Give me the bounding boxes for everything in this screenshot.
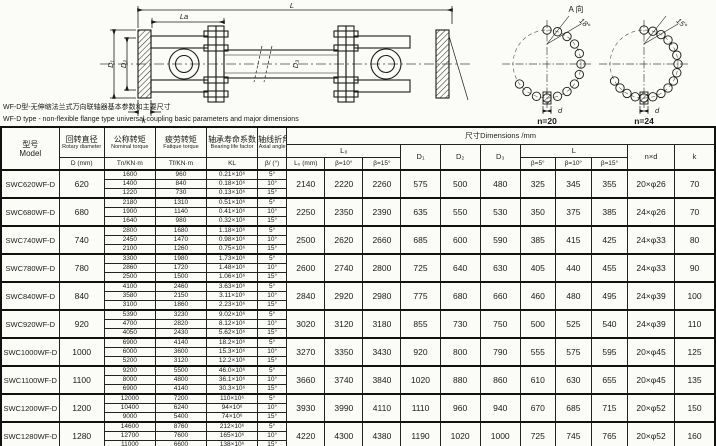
cell-nominal-torque: 3100: [104, 301, 155, 311]
cell-l0: 2140: [287, 170, 325, 198]
cell-d2: 600: [440, 226, 480, 254]
cell-nxd: 24×φ39: [627, 310, 674, 338]
col-header-d2: D₂: [440, 144, 480, 170]
cell-bearing-life: 46.0×10⁶: [207, 366, 258, 376]
cell-l0-b10: 2350: [325, 198, 363, 226]
cell-bearing-life: 212×10⁶: [207, 422, 258, 432]
cell-bearing-life: 15.3×10⁶: [207, 348, 258, 357]
cell-nominal-torque: 4700: [104, 320, 155, 329]
label-d1: D₁: [106, 59, 115, 67]
cell-fatigue-torque: 5500: [155, 366, 206, 376]
cell-nxd: 24×φ39: [627, 282, 674, 310]
sub-header-l0-b15: β=15°: [363, 157, 401, 170]
cell-d2: 1020: [440, 422, 480, 446]
cell-axial-angle: 5°: [258, 366, 287, 376]
cell-model: SWC740WF-D: [1, 226, 59, 254]
cell-fatigue-torque: 3230: [155, 310, 206, 320]
cell-model: SWC1200WF-D: [1, 394, 59, 422]
cell-d2: 550: [440, 198, 480, 226]
cell-fatigue-torque: 730: [155, 189, 206, 199]
cell-d1: 1020: [401, 366, 440, 394]
cell-nominal-torque: 12700: [104, 432, 155, 441]
cell-l0: 2500: [287, 226, 325, 254]
cell-l0-b15: 2260: [363, 170, 401, 198]
cell-fatigue-torque: 7600: [155, 432, 206, 441]
cell-l0-b10: 4300: [325, 422, 363, 446]
table-row: SWC620WF-D62016009600.21×10⁶5°2140222022…: [1, 170, 715, 180]
cell-l0: 3270: [287, 338, 325, 366]
cell-k: 70: [675, 170, 715, 198]
cell-axial-angle: 10°: [258, 404, 287, 413]
cell-l-b10: 525: [555, 310, 591, 338]
cell-nominal-torque: 2100: [104, 245, 155, 255]
cell-l-b10: 375: [555, 198, 591, 226]
col-header-rotary-diameter: 回转直径 Rotary diameter: [59, 127, 104, 157]
cell-l0-b15: 2800: [363, 254, 401, 282]
cell-d3: 630: [480, 254, 520, 282]
cell-l0: 4220: [287, 422, 325, 446]
cell-fatigue-torque: 3120: [155, 357, 206, 367]
cell-fatigue-torque: 7200: [155, 394, 206, 404]
cell-axial-angle: 5°: [258, 422, 287, 432]
cell-l-b10: 745: [555, 422, 591, 446]
cell-l-b15: 385: [591, 198, 627, 226]
bolt-hole: [563, 32, 571, 40]
table-row: SWC1280WF-D1280146008760212×10⁶5°4220430…: [1, 422, 715, 432]
table-body: SWC620WF-D62016009600.21×10⁶5°2140222022…: [1, 170, 715, 446]
cell-fatigue-torque: 8760: [155, 422, 206, 432]
cell-d1: 635: [401, 198, 440, 226]
caption-cn: WF-D型-无伸缩法兰式万向联轴器基本参数和主要尺寸: [3, 102, 171, 111]
cell-nominal-torque: 2450: [104, 236, 155, 245]
col-header-axial-angle: 轴线折角 Axial angle: [258, 127, 287, 157]
cell-fatigue-torque: 1260: [155, 245, 206, 255]
cell-nominal-torque: 8000: [104, 376, 155, 385]
cell-nominal-torque: 6900: [104, 338, 155, 348]
cell-k: 100: [675, 282, 715, 310]
cell-d1: 725: [401, 254, 440, 282]
cell-l-b15: 355: [591, 170, 627, 198]
cell-axial-angle: 10°: [258, 180, 287, 189]
cell-l-b15: 425: [591, 226, 627, 254]
cell-rotary-diameter: 1100: [59, 366, 104, 394]
cell-d3: 750: [480, 310, 520, 338]
cell-d3: 860: [480, 366, 520, 394]
cell-axial-angle: 10°: [258, 236, 287, 245]
unit-rotary-diameter: D (mm): [59, 157, 104, 170]
cell-fatigue-torque: 6600: [155, 441, 206, 446]
cell-l-b15: 455: [591, 254, 627, 282]
cell-nominal-torque: 2800: [104, 226, 155, 236]
cell-l0-b15: 3180: [363, 310, 401, 338]
articulation-line: [449, 36, 468, 100]
cell-l-b5: 670: [520, 394, 555, 422]
bolt-hole: [664, 84, 672, 92]
bolt-hole: [610, 77, 618, 85]
cell-l0: 3660: [287, 366, 325, 394]
cell-nominal-torque: 2500: [104, 273, 155, 283]
cell-d2: 960: [440, 394, 480, 422]
cell-k: 70: [675, 198, 715, 226]
cell-fatigue-torque: 980: [155, 217, 206, 227]
cell-bearing-life: 0.21×10⁶: [207, 170, 258, 180]
label-n24: n=24: [634, 116, 654, 126]
cell-bearing-life: 1.18×10⁶: [207, 226, 258, 236]
cell-rotary-diameter: 780: [59, 254, 104, 282]
cell-l-b10: 415: [555, 226, 591, 254]
cell-rotary-diameter: 1000: [59, 338, 104, 366]
cell-nominal-torque: 1400: [104, 180, 155, 189]
cell-d2: 500: [440, 170, 480, 198]
label-angle-n24: 15°: [674, 16, 688, 30]
cell-axial-angle: 15°: [258, 357, 287, 367]
cell-bearing-life: 138×10⁶: [207, 441, 258, 446]
cell-model: SWC920WF-D: [1, 310, 59, 338]
col-header-nominal-torque: 公称转矩 Nominal torque: [104, 127, 155, 157]
unit-fatigue-torque: Tf/KN·m: [155, 157, 206, 170]
cell-nominal-torque: 2860: [104, 264, 155, 273]
col-group-l: L: [520, 144, 627, 157]
cell-nxd: 20×φ52: [627, 394, 674, 422]
cell-d2: 800: [440, 338, 480, 366]
cell-l0: 2600: [287, 254, 325, 282]
cell-l-b5: 555: [520, 338, 555, 366]
cell-l-b5: 325: [520, 170, 555, 198]
cell-axial-angle: 5°: [258, 254, 287, 264]
cell-l-b5: 460: [520, 282, 555, 310]
cell-d3: 1000: [480, 422, 520, 446]
cell-l0-b15: 2660: [363, 226, 401, 254]
col-group-l0: L₀: [287, 144, 401, 157]
cell-bearing-life: 0.41×10⁶: [207, 208, 258, 217]
cell-bearing-life: 0.75×10⁶: [207, 245, 258, 255]
cell-nxd: 24×φ33: [627, 226, 674, 254]
cell-l0-b15: 3840: [363, 366, 401, 394]
cell-axial-angle: 5°: [258, 282, 287, 292]
cell-bearing-life: 165×10⁶: [207, 432, 258, 441]
bolt-hole: [664, 36, 672, 44]
cell-bearing-life: 0.51×10⁶: [207, 198, 258, 208]
label-d2: D₂: [119, 60, 128, 68]
cell-nominal-torque: 4050: [104, 329, 155, 339]
cell-l0-b15: 3430: [363, 338, 401, 366]
cell-model: SWC620WF-D: [1, 170, 59, 198]
cell-model: SWC1280WF-D: [1, 422, 59, 446]
cell-fatigue-torque: 6240: [155, 404, 206, 413]
cell-axial-angle: 10°: [258, 292, 287, 301]
cell-l0-b15: 2390: [363, 198, 401, 226]
cell-nominal-torque: 11000: [104, 441, 155, 446]
cell-axial-angle: 10°: [258, 264, 287, 273]
cell-fatigue-torque: 2430: [155, 329, 206, 339]
cell-l-b5: 500: [520, 310, 555, 338]
cell-nominal-torque: 5390: [104, 310, 155, 320]
cell-nominal-torque: 4100: [104, 282, 155, 292]
cell-nxd: 20×φ45: [627, 366, 674, 394]
cell-fatigue-torque: 1680: [155, 226, 206, 236]
bolt-hole: [575, 49, 583, 57]
cell-l0: 2840: [287, 282, 325, 310]
sub-header-l-b5: β=5°: [520, 157, 555, 170]
cell-model: SWC1000WF-D: [1, 338, 59, 366]
col-header-fatigue-torque: 疲劳转矩 Fatique torque: [155, 127, 206, 157]
cell-bearing-life: 74×10⁶: [207, 413, 258, 423]
cell-k: 135: [675, 366, 715, 394]
cell-bearing-life: 3.63×10⁶: [207, 282, 258, 292]
cell-model: SWC840WF-D: [1, 282, 59, 310]
cell-k: 80: [675, 226, 715, 254]
cell-nominal-torque: 2180: [104, 198, 155, 208]
cell-axial-angle: 10°: [258, 208, 287, 217]
cell-d1: 1190: [401, 422, 440, 446]
cell-nominal-torque: 9000: [104, 413, 155, 423]
caption-en: WF-D type - non-flexible flange type uni…: [3, 116, 299, 123]
cell-d3: 480: [480, 170, 520, 198]
cell-l0-b10: 2220: [325, 170, 363, 198]
cell-d1: 855: [401, 310, 440, 338]
cell-bearing-life: 94×10⁶: [207, 404, 258, 413]
spec-sheet: L La: [0, 0, 716, 446]
table-row: SWC680WF-D680218013100.51×10⁶5°225023502…: [1, 198, 715, 208]
cell-l-b15: 540: [591, 310, 627, 338]
label-angle-n20: 18°: [577, 16, 591, 30]
cell-fatigue-torque: 1310: [155, 198, 206, 208]
cell-d1: 685: [401, 226, 440, 254]
col-header-model: 型号 Model: [1, 127, 59, 170]
cell-nxd: 20×φ26: [627, 170, 674, 198]
cell-d2: 880: [440, 366, 480, 394]
cell-l-b5: 725: [520, 422, 555, 446]
cell-axial-angle: 10°: [258, 348, 287, 357]
cell-axial-angle: 15°: [258, 413, 287, 423]
cell-nominal-torque: 6000: [104, 348, 155, 357]
cell-d3: 790: [480, 338, 520, 366]
coupling-drawing-svg: L La: [0, 0, 716, 126]
cell-d1: 1110: [401, 394, 440, 422]
sub-header-l0-b10: β=10°: [325, 157, 363, 170]
label-hole-dia-n20: d: [558, 106, 563, 115]
cell-l-b10: 345: [555, 170, 591, 198]
cell-bearing-life: 8.12×10⁶: [207, 320, 258, 329]
cell-nominal-torque: 3300: [104, 254, 155, 264]
unit-axial-angle: β/ (°): [258, 157, 287, 170]
cell-nominal-torque: 1900: [104, 208, 155, 217]
flange-view-n20: 18° d n=20: [502, 16, 592, 126]
cell-l0: 2250: [287, 198, 325, 226]
label-hole-dia-n24: d: [655, 106, 660, 115]
cell-nominal-torque: 1640: [104, 217, 155, 227]
cell-rotary-diameter: 840: [59, 282, 104, 310]
cell-axial-angle: 5°: [258, 226, 287, 236]
cell-nominal-torque: 3580: [104, 292, 155, 301]
cell-fatigue-torque: 1470: [155, 236, 206, 245]
cell-bearing-life: 1.73×10⁶: [207, 254, 258, 264]
col-header-nxd: n×d: [627, 144, 674, 170]
cell-axial-angle: 15°: [258, 245, 287, 255]
cell-nxd: 24×φ33: [627, 254, 674, 282]
cell-d1: 775: [401, 282, 440, 310]
cell-l-b5: 385: [520, 226, 555, 254]
unit-bearing-life: KL: [207, 157, 258, 170]
parameters-table: 型号 Model 回转直径 Rotary diameter 公称转矩 Nomin…: [0, 126, 716, 446]
cell-axial-angle: 10°: [258, 376, 287, 385]
cell-bearing-life: 0.32×10⁶: [207, 217, 258, 227]
cell-d2: 640: [440, 254, 480, 282]
cell-bearing-life: 0.98×10⁶: [207, 236, 258, 245]
cell-d1: 920: [401, 338, 440, 366]
cell-bearing-life: 12.2×10⁶: [207, 357, 258, 367]
label-d3: D₃: [291, 60, 300, 68]
label-overall-length: L: [290, 1, 294, 10]
cell-l-b15: 495: [591, 282, 627, 310]
cell-k: 90: [675, 254, 715, 282]
flange-view-n24: 15° d n=24: [599, 16, 689, 126]
cell-fatigue-torque: 1720: [155, 264, 206, 273]
bolt-hole: [631, 93, 639, 101]
cell-axial-angle: 5°: [258, 198, 287, 208]
cell-rotary-diameter: 920: [59, 310, 104, 338]
cell-nominal-torque: 6900: [104, 385, 155, 395]
cell-axial-angle: 15°: [258, 189, 287, 199]
cell-axial-angle: 15°: [258, 301, 287, 311]
cell-l0-b15: 4380: [363, 422, 401, 446]
cell-rotary-diameter: 620: [59, 170, 104, 198]
cell-axial-angle: 15°: [258, 329, 287, 339]
sub-header-l0: L₀ (mm): [287, 157, 325, 170]
cell-l-b10: 685: [555, 394, 591, 422]
cell-model: SWC680WF-D: [1, 198, 59, 226]
cell-l0-b15: 2980: [363, 282, 401, 310]
cell-l-b10: 480: [555, 282, 591, 310]
cell-nominal-torque: 10400: [104, 404, 155, 413]
cell-nominal-torque: 14600: [104, 422, 155, 432]
cell-l-b15: 655: [591, 366, 627, 394]
col-header-d1: D₁: [401, 144, 440, 170]
cell-d3: 590: [480, 226, 520, 254]
cell-nxd: 20×φ52: [627, 422, 674, 446]
cell-fatigue-torque: 3600: [155, 348, 206, 357]
table-row: SWC1100WF-D11009200550046.0×10⁶5°3660374…: [1, 366, 715, 376]
col-header-bearing-life: 轴承寿命系数 Bearing life factor: [207, 127, 258, 157]
cell-bearing-life: 30.3×10⁶: [207, 385, 258, 395]
cell-d2: 730: [440, 310, 480, 338]
coupling-drawing: L La: [0, 0, 716, 126]
cell-bearing-life: 1.06×10⁶: [207, 273, 258, 283]
cell-nxd: 24×φ26: [627, 198, 674, 226]
cell-d3: 660: [480, 282, 520, 310]
cell-bearing-life: 36.1×10⁶: [207, 376, 258, 385]
cell-rotary-diameter: 1280: [59, 422, 104, 446]
cell-fatigue-torque: 4800: [155, 376, 206, 385]
col-header-k: k: [675, 144, 715, 170]
table-row: SWC780WF-D780330019801.73×10⁶5°260027402…: [1, 254, 715, 264]
cell-l0-b15: 4110: [363, 394, 401, 422]
cell-axial-angle: 15°: [258, 385, 287, 395]
cell-l0-b10: 3740: [325, 366, 363, 394]
cell-l-b10: 575: [555, 338, 591, 366]
bolt-hole: [669, 43, 677, 51]
cell-fatigue-torque: 1860: [155, 301, 206, 311]
cell-k: 150: [675, 394, 715, 422]
cell-l0-b10: 3120: [325, 310, 363, 338]
cell-l-b15: 715: [591, 394, 627, 422]
left-end-flange: [138, 30, 151, 98]
cell-d1: 575: [401, 170, 440, 198]
cell-nominal-torque: 5200: [104, 357, 155, 367]
dims-title: 尺寸Dimensions /mm: [287, 127, 715, 144]
label-n20: n=20: [537, 116, 557, 126]
cell-l0-b10: 2620: [325, 226, 363, 254]
cell-fatigue-torque: 2820: [155, 320, 206, 329]
cell-axial-angle: 15°: [258, 441, 287, 446]
cell-fatigue-torque: 2150: [155, 292, 206, 301]
sub-header-l-b10: β=10°: [555, 157, 591, 170]
cell-l0: 3020: [287, 310, 325, 338]
cell-fatigue-torque: 840: [155, 180, 206, 189]
cell-l-b5: 610: [520, 366, 555, 394]
cell-model: SWC1100WF-D: [1, 366, 59, 394]
cell-rotary-diameter: 1200: [59, 394, 104, 422]
cell-l-b10: 630: [555, 366, 591, 394]
cell-bearing-life: 2.23×10⁶: [207, 301, 258, 311]
cell-l-b10: 440: [555, 254, 591, 282]
cell-fatigue-torque: 4140: [155, 338, 206, 348]
table-row: SWC740WF-D740280016801.18×10⁶5°250026202…: [1, 226, 715, 236]
cell-nxd: 20×φ45: [627, 338, 674, 366]
cell-d3: 940: [480, 394, 520, 422]
cell-nominal-torque: 12000: [104, 394, 155, 404]
cell-l-b15: 595: [591, 338, 627, 366]
cell-l-b5: 350: [520, 198, 555, 226]
cell-bearing-life: 18.2×10⁶: [207, 338, 258, 348]
cell-axial-angle: 15°: [258, 217, 287, 227]
label-la: La: [180, 12, 188, 21]
cell-k: 160: [675, 422, 715, 446]
cell-l0-b10: 3350: [325, 338, 363, 366]
table-row: SWC1200WF-D1200120007200110×10⁶5°3930399…: [1, 394, 715, 404]
cell-fatigue-torque: 4140: [155, 385, 206, 395]
col-header-d3: D₃: [480, 144, 520, 170]
cell-l0-b10: 2740: [325, 254, 363, 282]
cell-axial-angle: 15°: [258, 273, 287, 283]
cell-fatigue-torque: 5400: [155, 413, 206, 423]
cell-axial-angle: 5°: [258, 394, 287, 404]
cell-bearing-life: 110×10⁶: [207, 394, 258, 404]
cell-nominal-torque: 1220: [104, 189, 155, 199]
cell-rotary-diameter: 680: [59, 198, 104, 226]
cell-axial-angle: 5°: [258, 338, 287, 348]
cell-l0-b10: 3990: [325, 394, 363, 422]
unit-nominal-torque: Tn/KN·m: [104, 157, 155, 170]
sub-header-l-b15: β=15°: [591, 157, 627, 170]
cell-k: 125: [675, 338, 715, 366]
cell-nominal-torque: 1600: [104, 170, 155, 180]
table-row: SWC920WF-D920539032309.02×10⁶5°302031203…: [1, 310, 715, 320]
cell-bearing-life: 9.02×10⁶: [207, 310, 258, 320]
cell-fatigue-torque: 1140: [155, 208, 206, 217]
cell-bearing-life: 0.13×10⁶: [207, 189, 258, 199]
cell-d2: 680: [440, 282, 480, 310]
cell-bearing-life: 5.62×10⁶: [207, 329, 258, 339]
right-end-flange: [436, 30, 449, 98]
cell-axial-angle: 10°: [258, 320, 287, 329]
cell-fatigue-torque: 1500: [155, 273, 206, 283]
table-row: SWC1000WF-D10006900414018.2×10⁶5°3270335…: [1, 338, 715, 348]
bolt-hole: [523, 87, 531, 95]
table-row: SWC840WF-D840410024603.63×10⁶5°284029202…: [1, 282, 715, 292]
label-view-a: A 向: [568, 4, 583, 14]
cell-bearing-life: 1.48×10⁶: [207, 264, 258, 273]
